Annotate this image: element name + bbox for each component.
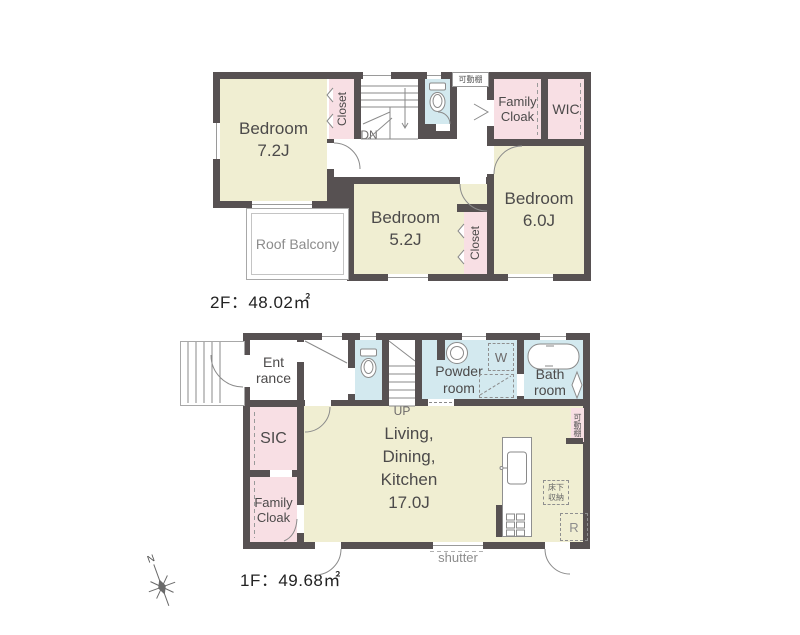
window-bedroom52-bottom xyxy=(388,274,428,281)
hall-2f-corridor xyxy=(334,139,487,177)
entrance-label: Ent rance xyxy=(256,354,291,386)
vanity-area xyxy=(479,374,514,398)
bedroom-7-2-label: Bedroom 7.2J xyxy=(239,118,308,162)
door-gap-bedroom72 xyxy=(327,143,334,169)
wic-label: WIC xyxy=(552,101,579,117)
wall-shelf-stub xyxy=(566,438,583,444)
stairs-dn-label: DN xyxy=(356,128,382,142)
door-gap-toilet-1f xyxy=(348,368,355,394)
floor-storage-label: 床下 収納 xyxy=(548,483,564,503)
room-sic: SIC xyxy=(250,407,297,470)
room-toilet-2f xyxy=(425,79,450,124)
room-family-cloak-2f: Family Cloak xyxy=(494,79,541,139)
door-gap-toilet-2f xyxy=(436,124,450,131)
door-gap-sic-fc xyxy=(270,470,292,477)
bath-room-label: Bath room xyxy=(524,366,576,398)
door-gap-bedroom52 xyxy=(460,177,486,184)
door-gap-bedroom60 xyxy=(487,146,494,174)
roof-balcony-label: Roof Balcony xyxy=(256,236,339,252)
family-cloak-2f-label: Family Cloak xyxy=(498,94,536,124)
room-entrance: Ent rance xyxy=(250,340,297,400)
room-bedroom-7-2: Bedroom 7.2J xyxy=(220,79,327,201)
shutter-label: shutter xyxy=(430,549,486,565)
ldk-label: Living, Dining, Kitchen 17.0J xyxy=(304,420,514,516)
entrance-porch xyxy=(180,341,245,406)
room-roof-balcony: Roof Balcony xyxy=(246,208,349,280)
door-gap-fc-ldk xyxy=(297,505,304,533)
stairs-up-label: UP xyxy=(389,404,415,418)
closet-a-label: Closet xyxy=(334,79,350,139)
window-shutter xyxy=(433,542,483,549)
door-gap-family-cloak-2f xyxy=(487,100,494,126)
hall-2f-upper xyxy=(457,79,487,139)
wall-closet-2f-b-top xyxy=(457,204,487,212)
family-cloak-1f-label: Family Cloak xyxy=(254,495,292,525)
compass-north-label: N xyxy=(142,551,159,567)
room-family-cloak-1f: Family Cloak xyxy=(250,477,297,542)
floor-2f-area-label: 2F：48.02㎡ xyxy=(210,288,311,313)
window-stairs-2f-top xyxy=(363,72,391,79)
floor-plan-canvas: Roof Balcony Bedroom 7.2J Closet Family … xyxy=(0,0,800,635)
entrance-hall xyxy=(304,340,348,400)
window-toilet-2f-top xyxy=(427,72,441,79)
compass-icon xyxy=(141,560,182,611)
closet-b-label: Closet xyxy=(467,213,483,273)
floor-storage-area: 床下 収納 xyxy=(543,480,569,505)
room-bedroom-6-0: Bedroom 6.0J xyxy=(494,146,584,274)
window-bath-top xyxy=(540,333,566,340)
room-wic: WIC xyxy=(548,79,584,139)
window-bedroom72-balcony xyxy=(252,201,312,208)
stairs-1f xyxy=(389,340,415,400)
window-bedroom60-bottom xyxy=(508,274,553,281)
washing-machine-area: W xyxy=(488,343,514,371)
window-toilet-1f-top xyxy=(360,333,376,340)
door-gap-powder xyxy=(428,399,454,406)
wall-powder-stub xyxy=(437,340,445,360)
bedroom-6-0-label: Bedroom 6.0J xyxy=(505,188,574,232)
window-hall-top xyxy=(322,333,342,340)
door-gap-hall-ldk xyxy=(305,400,331,406)
room-toilet-1f xyxy=(355,340,382,400)
refrigerator-area: R xyxy=(560,513,588,541)
floor-1f-area-label: 1F：49.68㎡ xyxy=(240,566,341,591)
bedroom-5-2-label: Bedroom 5.2J xyxy=(371,207,440,251)
wall-kitchen-stub xyxy=(496,505,502,537)
shelf-2f-label: 可動棚 xyxy=(452,72,489,87)
door-gap-ldk-right xyxy=(545,542,570,549)
door-gap-entrance xyxy=(243,355,250,387)
shelf-1f-label: 可動棚 xyxy=(571,408,584,442)
window-powder-top xyxy=(462,333,486,340)
door-gap-bath xyxy=(517,374,524,396)
fridge-label: R xyxy=(569,520,578,535)
washer-label: W xyxy=(495,350,507,365)
door-gap-ldk-left xyxy=(315,542,341,549)
kitchen-counter xyxy=(502,437,532,537)
sic-label: SIC xyxy=(260,430,287,448)
door-gap-entrance-hall xyxy=(297,342,304,362)
window-bedroom72-left xyxy=(213,123,220,159)
